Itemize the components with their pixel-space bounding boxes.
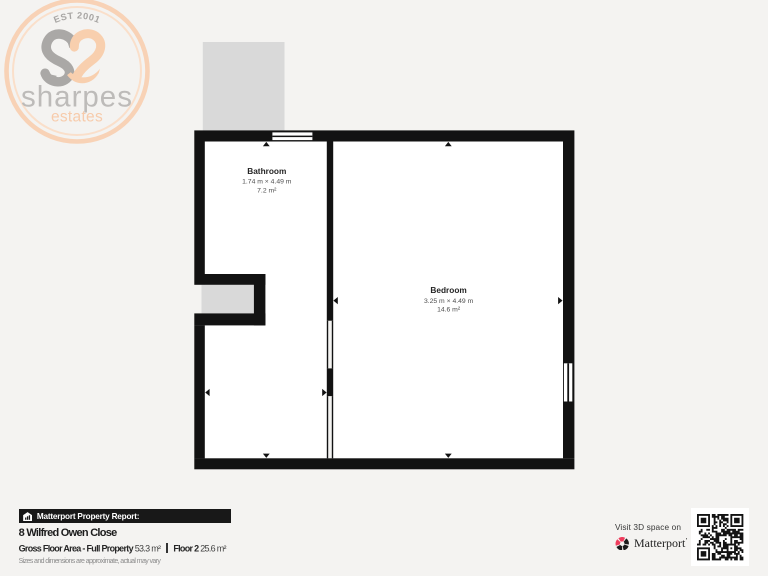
- svg-text:Bedroom: Bedroom: [430, 285, 466, 295]
- svg-text:1.74 m × 4.49 m: 1.74 m × 4.49 m: [242, 179, 292, 186]
- svg-text:3.25 m × 4.49 m: 3.25 m × 4.49 m: [424, 298, 474, 305]
- svg-text:14.6 m²: 14.6 m²: [437, 307, 461, 314]
- svg-text:7.2 m²: 7.2 m²: [257, 188, 277, 195]
- svg-text:Bathroom: Bathroom: [247, 166, 286, 176]
